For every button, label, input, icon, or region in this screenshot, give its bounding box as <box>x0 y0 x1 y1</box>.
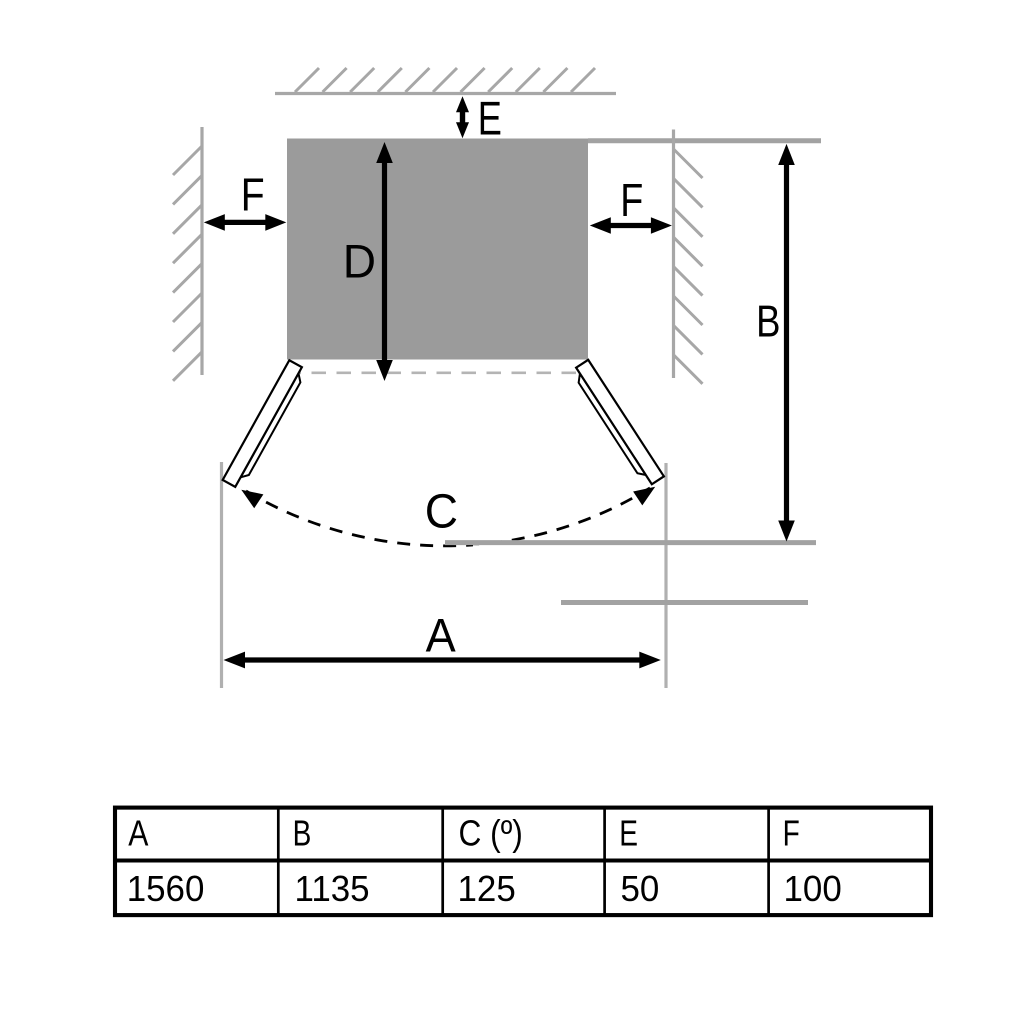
svg-text:125: 125 <box>458 869 516 910</box>
svg-text:1135: 1135 <box>295 869 370 910</box>
svg-text:1560: 1560 <box>127 869 205 910</box>
svg-text:A: A <box>426 609 456 662</box>
svg-text:100: 100 <box>784 869 842 910</box>
svg-text:B: B <box>293 813 312 853</box>
svg-text:F: F <box>620 174 643 225</box>
svg-text:D: D <box>343 235 376 288</box>
svg-text:F: F <box>241 169 265 221</box>
svg-text:F: F <box>783 813 800 853</box>
svg-text:E: E <box>478 92 502 145</box>
svg-text:C (º): C (º) <box>459 814 523 854</box>
svg-text:C: C <box>425 484 458 538</box>
svg-text:E: E <box>619 813 638 853</box>
svg-text:50: 50 <box>621 869 660 910</box>
svg-text:B: B <box>756 296 780 346</box>
svg-text:A: A <box>128 814 149 854</box>
